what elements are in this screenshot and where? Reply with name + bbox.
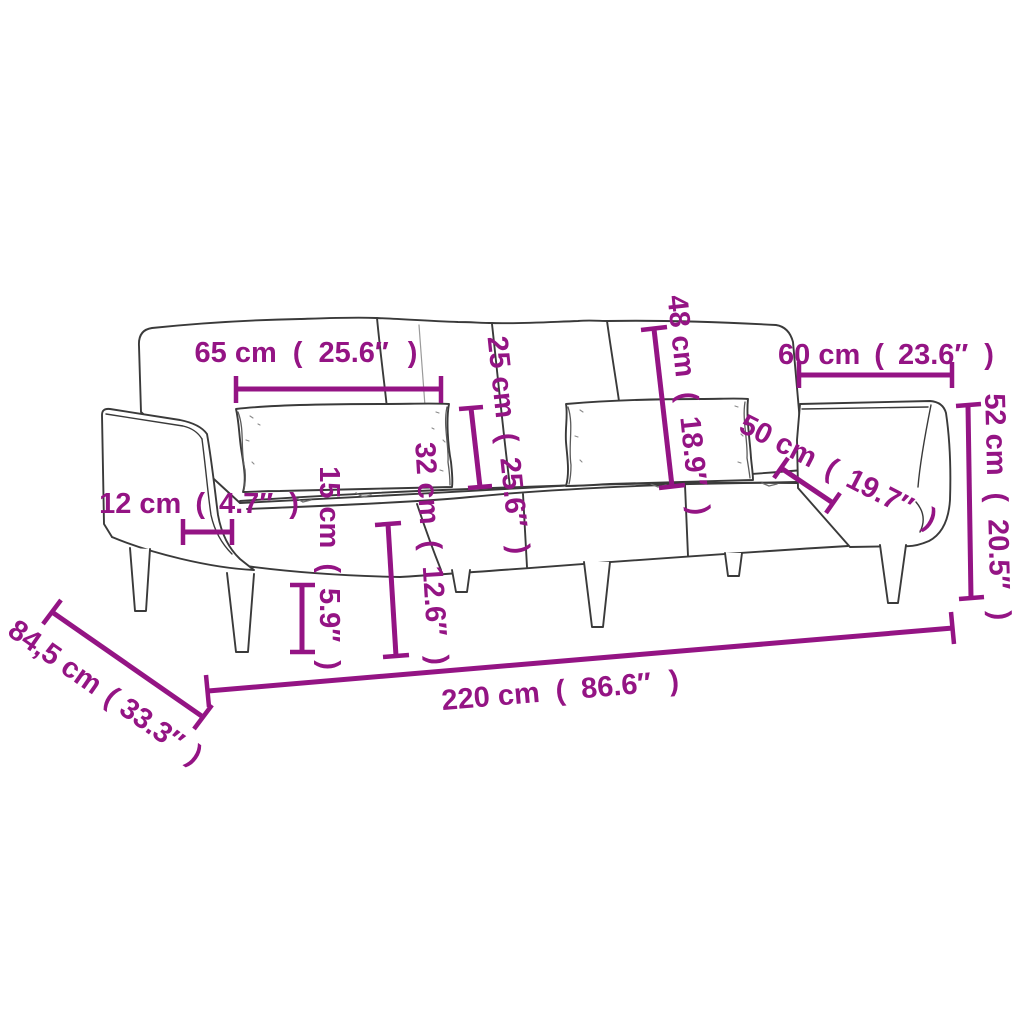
svg-text:12 cm(4.7″): 12 cm(4.7″)	[99, 488, 299, 520]
svg-text:15 cm(5.9″): 15 cm(5.9″)	[313, 466, 345, 670]
